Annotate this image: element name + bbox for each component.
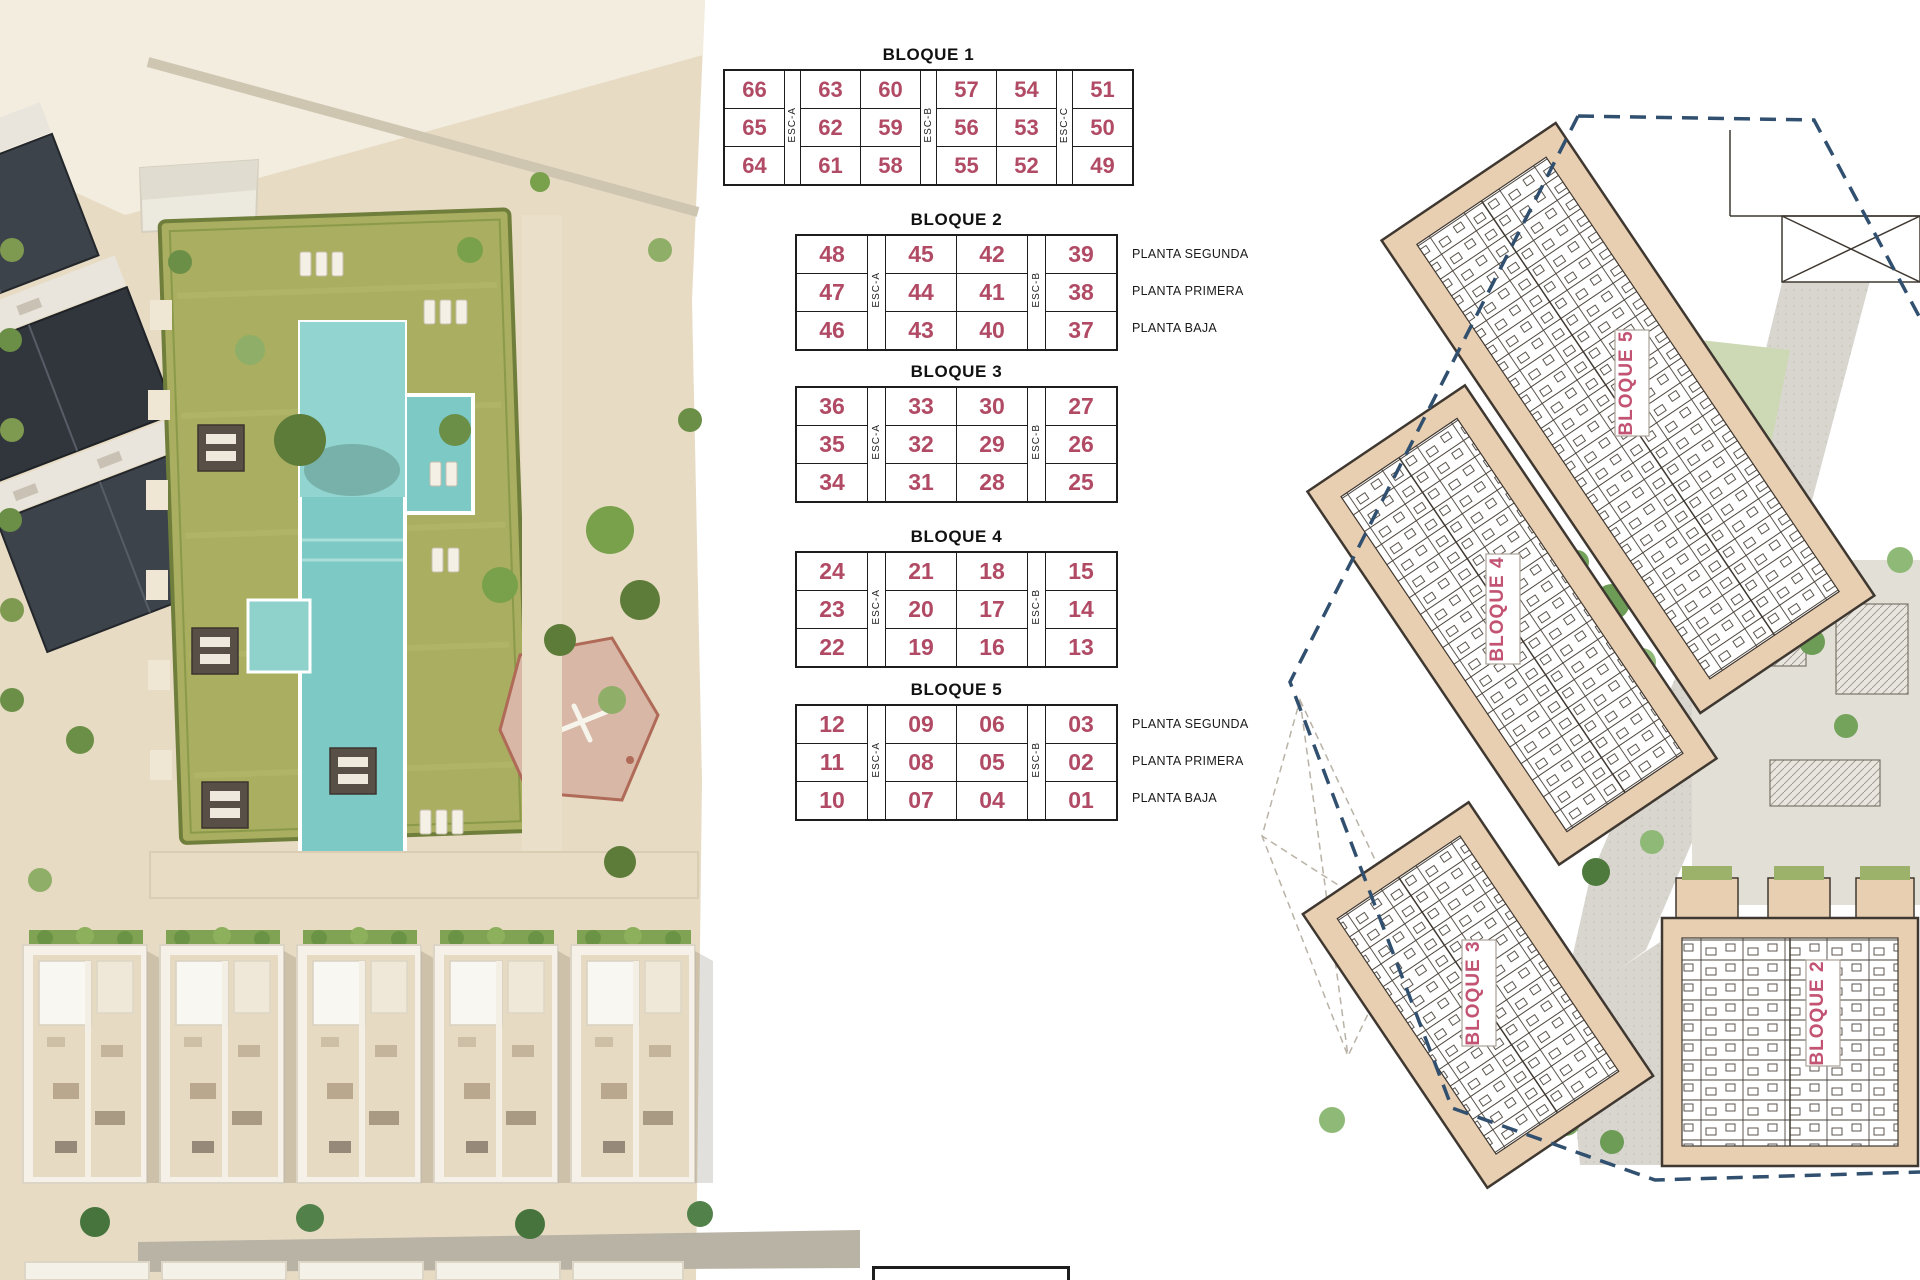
stair-core-cell: ESC-B xyxy=(1028,705,1046,820)
unit-number-cell: 63 xyxy=(801,70,861,109)
stair-core-label: ESC-B xyxy=(1032,742,1042,778)
unit-number-cell: 60 xyxy=(861,70,921,109)
brochure-page: BLOQUE 1 66ESC-A6360ESC-B5754ESC-C516562… xyxy=(0,0,1920,1280)
bloque-3-title: BLOQUE 3 xyxy=(795,362,1118,382)
stair-core-cell: ESC-A xyxy=(868,235,886,350)
unit-number-cell: 04 xyxy=(957,782,1028,821)
unit-number-cell: 40 xyxy=(957,312,1028,351)
townhouse-row xyxy=(23,927,713,1183)
unit-number-cell: 58 xyxy=(861,147,921,186)
bloque-4-title: BLOQUE 4 xyxy=(795,527,1118,547)
bloque-1-table: BLOQUE 1 66ESC-A6360ESC-B5754ESC-C516562… xyxy=(723,45,1134,186)
stair-core-cell: ESC-A xyxy=(785,70,801,185)
unit-number-cell: 03 xyxy=(1046,705,1118,744)
unit-number-cell: 26 xyxy=(1046,426,1118,464)
bloque-1-title: BLOQUE 1 xyxy=(723,45,1134,65)
unit-number-cell: 50 xyxy=(1073,109,1134,147)
stair-core-cell: ESC-A xyxy=(868,387,886,502)
stair-core-cell: ESC-B xyxy=(1028,387,1046,502)
unit-number-cell: 59 xyxy=(861,109,921,147)
unit-number-cell: 30 xyxy=(957,387,1028,426)
unit-number-cell: 24 xyxy=(796,552,868,591)
unit-number-cell: 23 xyxy=(796,591,868,629)
unit-number-cell: 54 xyxy=(997,70,1057,109)
unit-number-cell: 62 xyxy=(801,109,861,147)
unit-number-grid: 66ESC-A6360ESC-B5754ESC-C516562595653506… xyxy=(723,69,1134,186)
unit-number-cell: 31 xyxy=(886,464,957,503)
unit-number-cell: 45 xyxy=(886,235,957,274)
unit-number-cell: 43 xyxy=(886,312,957,351)
unit-number-cell: 11 xyxy=(796,744,868,782)
x-braced-structure xyxy=(1730,130,1920,282)
stair-core-cell: ESC-B xyxy=(921,70,937,185)
unit-number-cell: 12 xyxy=(796,705,868,744)
plan-label-bloque-2: BLOQUE 2 xyxy=(1807,960,1828,1065)
unit-number-cell: 56 xyxy=(937,109,997,147)
plan-label-bloque-3: BLOQUE 3 xyxy=(1463,940,1484,1045)
unit-number-cell: 65 xyxy=(724,109,785,147)
unit-number-cell: 66 xyxy=(724,70,785,109)
stair-core-cell: ESC-B xyxy=(1028,235,1046,350)
bloque-2-table: BLOQUE 2 48ESC-A4542ESC-B394744413846434… xyxy=(795,210,1118,351)
unit-number-cell: 47 xyxy=(796,274,868,312)
stair-core-label: ESC-B xyxy=(1032,272,1042,308)
unit-number-cell: 22 xyxy=(796,629,868,668)
bloque-2-title: BLOQUE 2 xyxy=(795,210,1118,230)
plan-label-bloque-4: BLOQUE 4 xyxy=(1487,556,1508,661)
unit-number-cell: 52 xyxy=(997,147,1057,186)
unit-number-cell: 42 xyxy=(957,235,1028,274)
aerial-render-illustration xyxy=(0,0,870,1280)
stair-core-cell: ESC-C xyxy=(1057,70,1073,185)
unit-number-cell: 34 xyxy=(796,464,868,503)
stair-core-cell: ESC-A xyxy=(868,705,886,820)
unit-number-grid: 24ESC-A2118ESC-B152320171422191613 xyxy=(795,551,1118,668)
unit-number-grid: 36ESC-A3330ESC-B273532292634312825 xyxy=(795,386,1118,503)
stair-core-label: ESC-A xyxy=(788,107,798,143)
unit-number-cell: 57 xyxy=(937,70,997,109)
path-vertical xyxy=(522,215,562,855)
stair-core-label: ESC-C xyxy=(1060,107,1070,143)
site-plan-illustration: BLOQUE 5 BLOQUE 4 BLOQUE 3 BLOQUE 2 xyxy=(1220,0,1920,1280)
unit-number-cell: 49 xyxy=(1073,147,1134,186)
unit-number-cell: 38 xyxy=(1046,274,1118,312)
unit-number-cell: 20 xyxy=(886,591,957,629)
unit-number-cell: 41 xyxy=(957,274,1028,312)
bloque-5-title: BLOQUE 5 xyxy=(795,680,1118,700)
unit-number-cell: 05 xyxy=(957,744,1028,782)
stair-core-label: ESC-A xyxy=(872,424,882,460)
unit-number-grid: 48ESC-A4542ESC-B394744413846434037 xyxy=(795,234,1118,351)
bloque-3-table: BLOQUE 3 36ESC-A3330ESC-B273532292634312… xyxy=(795,362,1118,503)
unit-number-cell: 46 xyxy=(796,312,868,351)
kids-pool xyxy=(248,600,310,672)
unit-number-cell: 48 xyxy=(796,235,868,274)
unit-number-cell: 06 xyxy=(957,705,1028,744)
stair-core-label: ESC-A xyxy=(872,272,882,308)
bloque-5-table: BLOQUE 5 12ESC-A0906ESC-B031108050210070… xyxy=(795,680,1118,821)
stair-core-label: ESC-B xyxy=(1032,589,1042,625)
unit-number-cell: 61 xyxy=(801,147,861,186)
unit-number-cell: 17 xyxy=(957,591,1028,629)
unit-number-cell: 29 xyxy=(957,426,1028,464)
unit-number-cell: 55 xyxy=(937,147,997,186)
unit-number-cell: 35 xyxy=(796,426,868,464)
unit-number-cell: 14 xyxy=(1046,591,1118,629)
unit-number-cell: 07 xyxy=(886,782,957,821)
unit-number-cell: 01 xyxy=(1046,782,1118,821)
unit-number-cell: 53 xyxy=(997,109,1057,147)
cropped-legend-box xyxy=(872,1266,1070,1280)
stair-core-label: ESC-A xyxy=(872,589,882,625)
unit-number-cell: 16 xyxy=(957,629,1028,668)
unit-number-cell: 25 xyxy=(1046,464,1118,503)
bloque-4-table: BLOQUE 4 24ESC-A2118ESC-B152320171422191… xyxy=(795,527,1118,668)
unit-number-grid: 12ESC-A0906ESC-B031108050210070401 xyxy=(795,704,1118,821)
unit-number-cell: 21 xyxy=(886,552,957,591)
unit-number-cell: 44 xyxy=(886,274,957,312)
unit-number-cell: 36 xyxy=(796,387,868,426)
building-bloque-2 xyxy=(1662,866,1918,1166)
unit-number-cell: 10 xyxy=(796,782,868,821)
plan-label-bloque-5: BLOQUE 5 xyxy=(1616,330,1637,435)
unit-number-cell: 15 xyxy=(1046,552,1118,591)
unit-number-cell: 32 xyxy=(886,426,957,464)
unit-number-cell: 39 xyxy=(1046,235,1118,274)
stair-core-cell: ESC-A xyxy=(868,552,886,667)
stair-core-cell: ESC-B xyxy=(1028,552,1046,667)
unit-number-cell: 37 xyxy=(1046,312,1118,351)
stair-core-label: ESC-A xyxy=(872,742,882,778)
unit-number-cell: 13 xyxy=(1046,629,1118,668)
unit-number-cell: 02 xyxy=(1046,744,1118,782)
lower-house-row xyxy=(25,1262,683,1280)
stair-core-label: ESC-B xyxy=(1032,424,1042,460)
unit-number-cell: 33 xyxy=(886,387,957,426)
stair-core-label: ESC-B xyxy=(924,107,934,143)
unit-number-cell: 09 xyxy=(886,705,957,744)
unit-number-cell: 28 xyxy=(957,464,1028,503)
unit-number-cell: 27 xyxy=(1046,387,1118,426)
unit-number-cell: 08 xyxy=(886,744,957,782)
unit-number-cell: 51 xyxy=(1073,70,1134,109)
unit-number-cell: 64 xyxy=(724,147,785,186)
unit-number-cell: 19 xyxy=(886,629,957,668)
unit-number-cell: 18 xyxy=(957,552,1028,591)
